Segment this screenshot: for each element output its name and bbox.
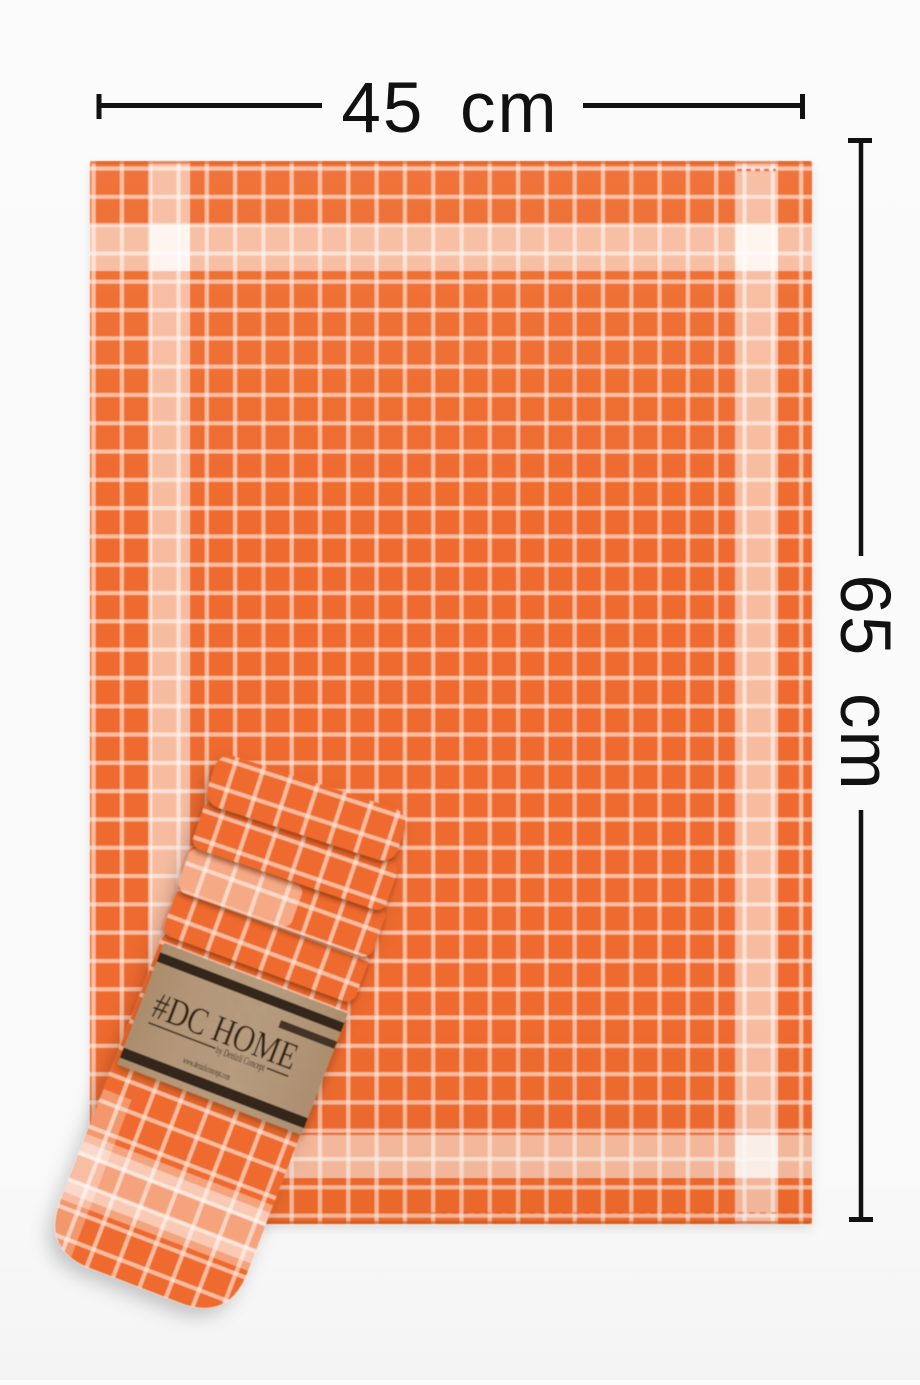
svg-text:65 cm: 65 cm bbox=[825, 574, 904, 791]
svg-text:45 cm: 45 cm bbox=[341, 69, 558, 148]
